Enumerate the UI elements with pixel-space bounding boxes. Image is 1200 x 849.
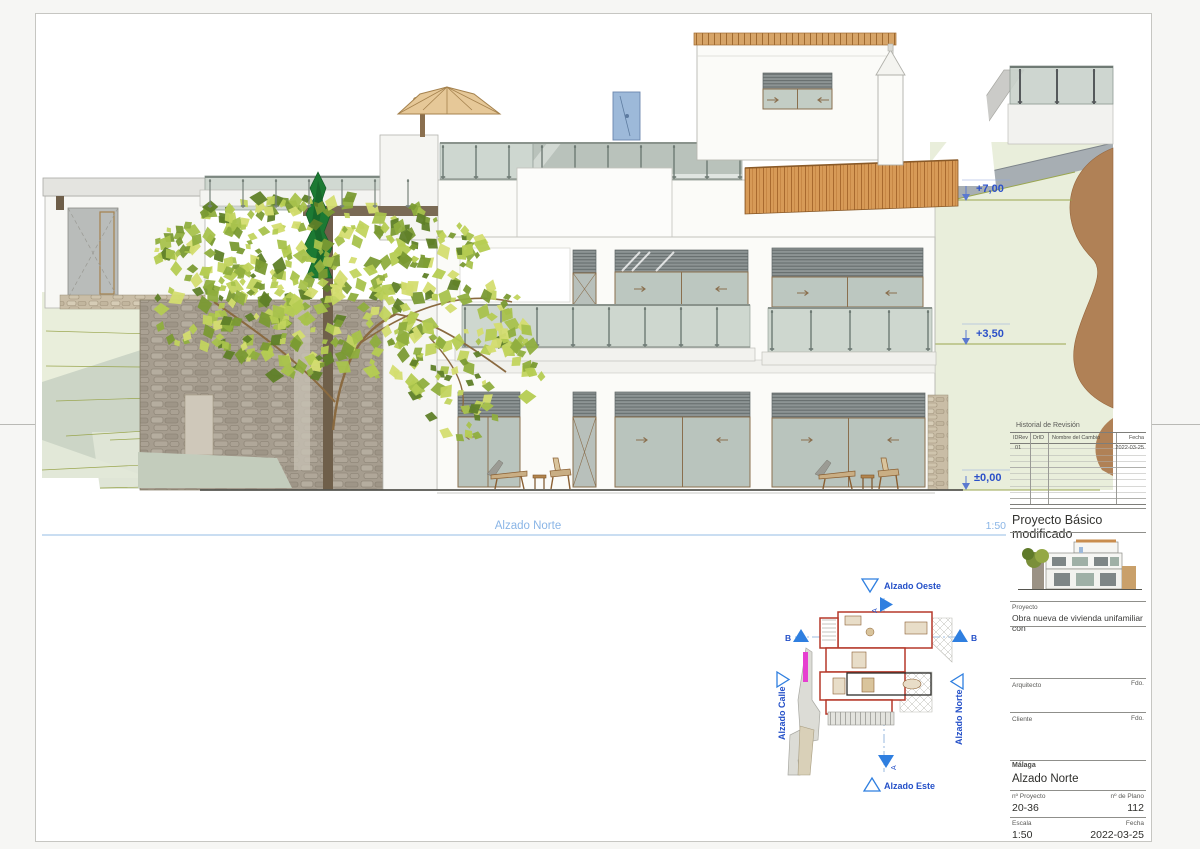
project-value: Obra nueva de vivienda unifamiliar con — [1012, 613, 1152, 633]
marker-east: A Alzado Este — [864, 755, 935, 791]
east-outline-triangle — [864, 778, 880, 791]
stair-volume — [517, 168, 672, 237]
location-label: Málaga — [1012, 762, 1036, 769]
plan-no-value: 112 — [1127, 802, 1144, 814]
section-b-letter-left: B — [785, 633, 791, 643]
plan-pink-element — [803, 652, 808, 682]
project-no-label: nº Proyecto — [1012, 793, 1045, 800]
marker-north: Alzado Norte — [951, 674, 964, 745]
caption-scale: 1:50 — [986, 520, 1007, 532]
plan-deck — [828, 712, 894, 725]
scale-value: 1:50 — [1012, 829, 1032, 841]
date-label: Fecha — [1126, 820, 1144, 827]
garage-block — [43, 178, 207, 309]
scale-label: Escala — [1012, 820, 1032, 827]
architect-sign-label: Fdo. — [1131, 680, 1144, 687]
drawing-caption: Alzado Norte 1:50 — [42, 520, 1006, 535]
rev-row-date: 2022-03-25 — [1115, 445, 1144, 451]
doc-title: Proyecto Básico modificado — [1012, 513, 1152, 541]
parasol — [398, 87, 500, 137]
revision-table: IDRev DrID Nombre del Cambio Fecha 01 20… — [1010, 432, 1146, 505]
west-outline-triangle — [862, 579, 878, 592]
stone-pillar — [928, 395, 948, 490]
section-b-arrow-right — [952, 629, 968, 642]
client-label: Cliente — [1012, 716, 1032, 723]
architect-label: Arquitecto — [1012, 682, 1041, 689]
door-ground — [573, 392, 596, 487]
plan-no-label: nº de Plano — [1111, 793, 1144, 800]
level-text-7: +7,00 — [976, 183, 1004, 195]
section-a-letter-bottom: A — [891, 765, 898, 770]
site-plan: Alzado Oeste A B B Alzado Calle — [777, 579, 977, 791]
section-a-arrow-top — [880, 597, 893, 612]
rev-col-idrev: IDRev — [1013, 435, 1028, 441]
revision-title: Historial de Revisión — [1016, 422, 1080, 429]
elevation-caption: Alzado Norte — [495, 520, 561, 532]
street-fence — [1008, 66, 1113, 144]
project-label: Proyecto — [1012, 604, 1038, 611]
rev-col-fecha: Fecha — [1129, 435, 1144, 441]
level-text-0: ±0,00 — [974, 472, 1001, 484]
street-outline-triangle — [777, 672, 789, 687]
level-text-35: +3,50 — [976, 328, 1004, 340]
west-label: Alzado Oeste — [884, 581, 941, 591]
tile-roof-band — [745, 160, 958, 214]
thumbnail-image — [1016, 538, 1144, 598]
north-outline-triangle — [951, 674, 963, 689]
coping-tiles — [694, 33, 896, 45]
title-block: Historial de Revisión IDRev DrID Nombre … — [1008, 420, 1152, 842]
garage-roof-slab — [43, 178, 207, 196]
garage-post — [56, 196, 64, 210]
client-sign-label: Fdo. — [1131, 715, 1144, 722]
section-b-arrow-left — [793, 629, 809, 642]
window-middle-center — [615, 250, 748, 305]
window-ground-center — [615, 392, 750, 487]
north-label: Alzado Norte — [954, 689, 964, 745]
garage-door — [68, 208, 118, 298]
upper-volume-window — [763, 73, 832, 109]
balcony-right — [762, 248, 936, 365]
section-a-letter-top: A — [872, 608, 879, 613]
street-label: Alzado Calle — [777, 686, 787, 740]
marker-street: Alzado Calle — [777, 672, 789, 740]
door-middle — [573, 250, 596, 305]
rev-row-id: 01 — [1015, 445, 1021, 451]
plan-steps — [798, 726, 814, 775]
date-value: 2022-03-25 — [1090, 829, 1144, 841]
upper-volume — [694, 33, 896, 160]
rev-col-drid: DrID — [1033, 435, 1044, 441]
solar-panel — [613, 92, 640, 140]
drawing-name: Alzado Norte — [1012, 773, 1078, 785]
east-label: Alzado Este — [884, 781, 935, 791]
section-b-letter-right: B — [971, 633, 977, 643]
marker-west: Alzado Oeste A — [862, 579, 941, 613]
project-no-value: 20-36 — [1012, 802, 1039, 814]
rev-col-change: Nombre del Cambio — [1052, 435, 1100, 441]
drawing-sheet-page: +7,00 +3,50 ±0,00 Alzado Nor — [0, 0, 1200, 849]
